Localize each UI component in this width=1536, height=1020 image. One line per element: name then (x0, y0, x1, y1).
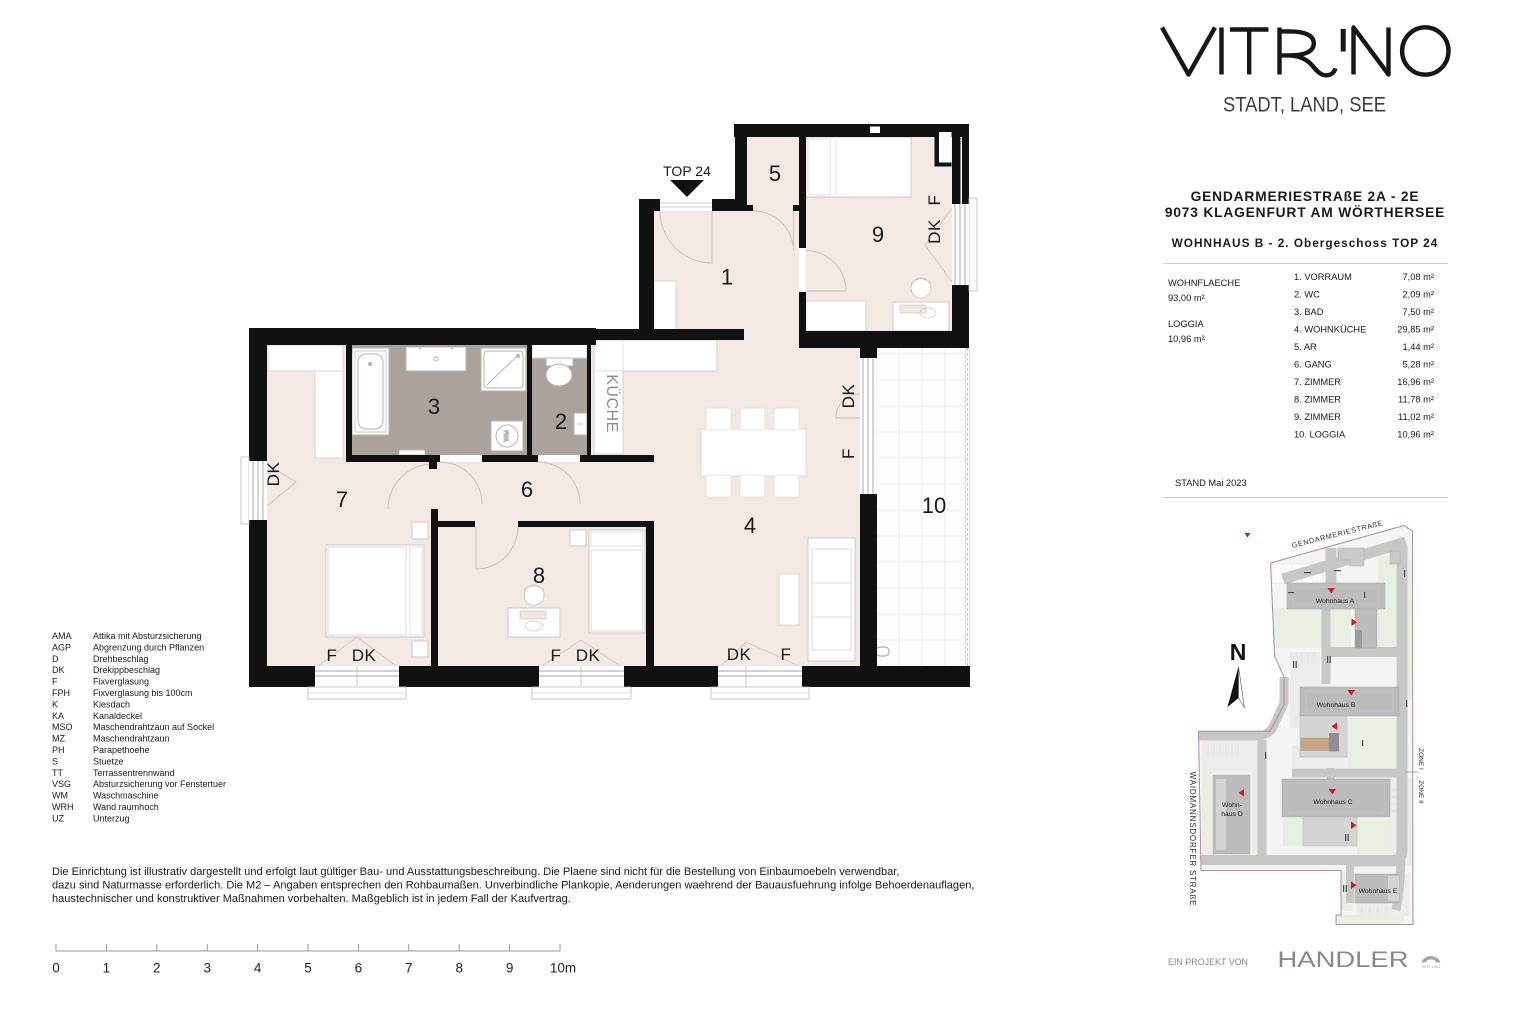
svg-text:2: 2 (153, 961, 161, 976)
svg-text:4: 4 (744, 513, 756, 538)
svg-text:9. ZIMMER: 9. ZIMMER (1294, 412, 1341, 422)
svg-text:10: 10 (922, 493, 946, 518)
svg-text:ZONE II: ZONE II (1417, 780, 1424, 804)
svg-text:10. LOGGIA: 10. LOGGIA (1294, 430, 1346, 440)
svg-text:PH: PH (52, 745, 65, 755)
svg-text:Wohnhaus A: Wohnhaus A (1316, 598, 1355, 605)
svg-text:Fixverglasung: Fixverglasung (93, 677, 149, 687)
svg-text:F: F (925, 195, 944, 206)
svg-text:9: 9 (506, 961, 514, 976)
svg-text:2,09 m²: 2,09 m² (1402, 290, 1434, 300)
svg-text:Absturzsicherung vor Fenstertu: Absturzsicherung vor Fenstertuer (93, 779, 226, 789)
svg-text:7: 7 (405, 961, 413, 976)
svg-text:1: 1 (721, 265, 733, 290)
svg-text:3: 3 (203, 961, 211, 976)
svg-text:Die Einrichtung ist illustrati: Die Einrichtung ist illustrativ dargeste… (52, 866, 899, 878)
svg-text:D: D (52, 654, 59, 664)
svg-text:AMA: AMA (52, 631, 72, 641)
svg-text:Stuetze: Stuetze (93, 756, 124, 766)
svg-text:F: F (551, 646, 562, 665)
svg-text:2. WC: 2. WC (1294, 290, 1320, 300)
svg-text:Waschmaschine: Waschmaschine (93, 791, 159, 801)
svg-text:11,78 m²: 11,78 m² (1398, 395, 1434, 405)
svg-text:WM: WM (52, 791, 68, 801)
svg-text:FPH: FPH (52, 688, 70, 698)
svg-text:Fixverglasung bis 100cm: Fixverglasung bis 100cm (93, 688, 193, 698)
svg-text:Wohnhaus C: Wohnhaus C (1313, 799, 1352, 806)
svg-text:3. BAD: 3. BAD (1294, 307, 1324, 317)
svg-text:AGP: AGP (52, 642, 71, 652)
svg-text:VSG: VSG (52, 779, 71, 789)
svg-text:WOHNFLAECHE: WOHNFLAECHE (1168, 278, 1240, 288)
svg-text:DK: DK (727, 645, 752, 664)
svg-text:4: 4 (254, 961, 262, 976)
svg-text:STAND Mai 2023: STAND Mai 2023 (1175, 478, 1247, 488)
svg-text:WM: WM (504, 430, 511, 442)
svg-text:1. VORRAUM: 1. VORRAUM (1294, 272, 1352, 282)
svg-text:9: 9 (872, 222, 884, 247)
svg-text:8. ZIMMER: 8. ZIMMER (1294, 395, 1341, 405)
svg-text:Parapethoehe: Parapethoehe (93, 745, 150, 755)
svg-text:KÜCHE: KÜCHE (603, 374, 621, 433)
svg-text:N: N (1230, 639, 1247, 665)
svg-text:Kiesdach: Kiesdach (93, 699, 130, 709)
svg-text:K: K (52, 699, 58, 709)
svg-text:10,96 m²: 10,96 m² (1168, 334, 1205, 344)
svg-text:MSO: MSO (52, 722, 73, 732)
svg-text:TOP 24: TOP 24 (663, 163, 711, 179)
svg-text:TT: TT (52, 768, 63, 778)
svg-text:1,44 m²: 1,44 m² (1402, 342, 1434, 352)
svg-text:F: F (781, 645, 792, 664)
svg-text:F: F (52, 677, 58, 687)
svg-text:ZONE I: ZONE I (1417, 748, 1424, 770)
svg-text:DK: DK (264, 462, 283, 487)
svg-text:5: 5 (769, 161, 781, 186)
svg-text:8: 8 (455, 961, 463, 976)
svg-text:5,28 m²: 5,28 m² (1402, 360, 1434, 370)
svg-text:4. WOHNKÜCHE: 4. WOHNKÜCHE (1294, 325, 1366, 335)
svg-text:haus D: haus D (1221, 811, 1243, 818)
svg-text:Wohn-: Wohn- (1222, 802, 1242, 809)
svg-text:7: 7 (336, 487, 348, 512)
svg-text:93,00 m²: 93,00 m² (1168, 293, 1205, 303)
svg-text:7,50 m²: 7,50 m² (1402, 307, 1434, 317)
svg-text:Drekippbeschlag: Drekippbeschlag (93, 665, 160, 675)
svg-text:5. AR: 5. AR (1294, 342, 1317, 352)
svg-text:UZ: UZ (52, 813, 64, 823)
svg-text:DK: DK (925, 219, 944, 244)
svg-text:F: F (839, 448, 858, 459)
svg-text:11,02 m²: 11,02 m² (1398, 412, 1434, 422)
svg-text:6: 6 (521, 477, 533, 502)
svg-text:1: 1 (103, 961, 111, 976)
svg-text:WRH: WRH (52, 802, 74, 812)
svg-text:haustechnischer und konstrukti: haustechnischer und konstruktiver Maßnah… (52, 893, 571, 905)
svg-text:Attika mit Absturzsicherung: Attika mit Absturzsicherung (93, 631, 202, 641)
svg-text:S: S (52, 756, 58, 766)
svg-text:F: F (327, 646, 338, 665)
svg-text:Drehbeschlag: Drehbeschlag (93, 654, 149, 664)
svg-text:SEIT 1862: SEIT 1862 (1422, 964, 1442, 969)
svg-text:6. GANG: 6. GANG (1294, 360, 1332, 370)
svg-text:STADT, LAND, SEE: STADT, LAND, SEE (1223, 93, 1386, 117)
svg-text:dazu sind Naturmasse erforderl: dazu sind Naturmasse erforderlich. Die M… (52, 880, 974, 892)
svg-text:Maschendrahtzaun auf Sockel: Maschendrahtzaun auf Sockel (93, 722, 214, 732)
svg-text:10,96 m²: 10,96 m² (1397, 430, 1434, 440)
svg-text:WAIDMANNSDORFER STRAßE: WAIDMANNSDORFER STRAßE (1188, 772, 1197, 907)
svg-text:8: 8 (533, 563, 545, 588)
svg-text:GENDARMERIESTRAßE 2A - 2E: GENDARMERIESTRAßE 2A - 2E (1191, 189, 1420, 204)
svg-text:DK: DK (52, 665, 65, 675)
svg-text:9073 KLAGENFURT AM WÖRTHERSEE: 9073 KLAGENFURT AM WÖRTHERSEE (1165, 204, 1445, 220)
svg-text:LOGGIA: LOGGIA (1168, 319, 1204, 329)
svg-text:Maschendrahtzaun: Maschendrahtzaun (93, 734, 170, 744)
svg-text:Unterzug: Unterzug (93, 813, 130, 823)
svg-text:10m: 10m (550, 961, 576, 976)
svg-text:Wohnhaus E: Wohnhaus E (1359, 888, 1398, 895)
svg-text:6: 6 (355, 961, 363, 976)
svg-text:MZ: MZ (52, 734, 65, 744)
svg-text:KA: KA (52, 711, 64, 721)
svg-text:WOHNHAUS B - 2. Obergeschoss T: WOHNHAUS B - 2. Obergeschoss TOP 24 (1172, 236, 1439, 250)
svg-text:7,08 m²: 7,08 m² (1402, 272, 1434, 282)
svg-text:Wand raumhoch: Wand raumhoch (93, 802, 159, 812)
svg-text:0: 0 (52, 961, 60, 976)
svg-text:HANDLER: HANDLER (1278, 947, 1409, 972)
svg-text:7. ZIMMER: 7. ZIMMER (1294, 377, 1341, 387)
svg-text:2: 2 (555, 409, 567, 434)
svg-text:Terrassentrennwand: Terrassentrennwand (93, 768, 175, 778)
svg-text:EIN PROJEKT VON: EIN PROJEKT VON (1168, 957, 1248, 967)
svg-text:Kanaldeckel: Kanaldeckel (93, 711, 142, 721)
svg-text:DK: DK (839, 384, 858, 409)
svg-text:16,96 m²: 16,96 m² (1397, 377, 1434, 387)
svg-text:Wohnhaus B: Wohnhaus B (1317, 702, 1356, 709)
svg-text:29,85 m²: 29,85 m² (1397, 325, 1434, 335)
svg-text:DK: DK (576, 646, 601, 665)
svg-text:3: 3 (428, 394, 440, 419)
svg-text:DK: DK (352, 646, 377, 665)
svg-text:5: 5 (304, 961, 312, 976)
svg-text:Abgrenzung durch Pflanzen: Abgrenzung durch Pflanzen (93, 642, 204, 652)
